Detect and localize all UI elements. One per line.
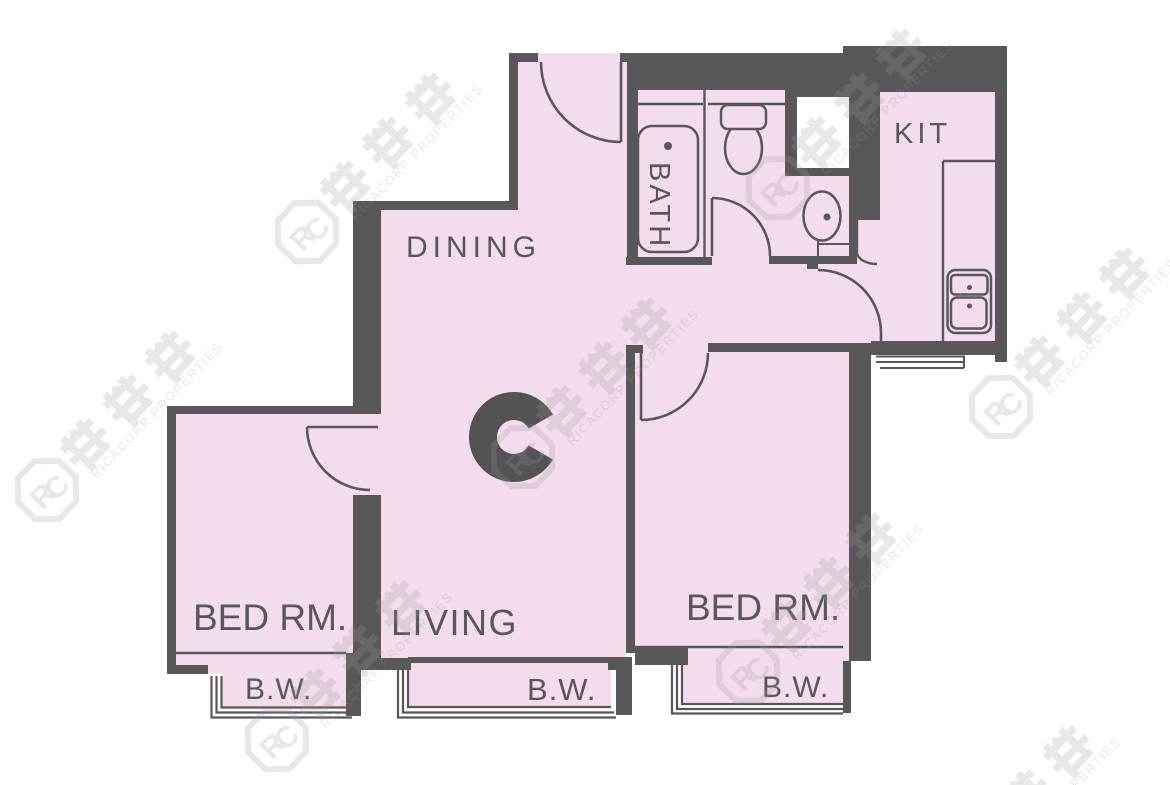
svg-text:B.W.: B.W. [527, 672, 596, 707]
svg-text:BED RM.: BED RM. [193, 597, 347, 638]
svg-text:DINING: DINING [406, 231, 541, 264]
svg-text:KIT: KIT [894, 118, 951, 150]
svg-text:BATH: BATH [643, 162, 675, 249]
